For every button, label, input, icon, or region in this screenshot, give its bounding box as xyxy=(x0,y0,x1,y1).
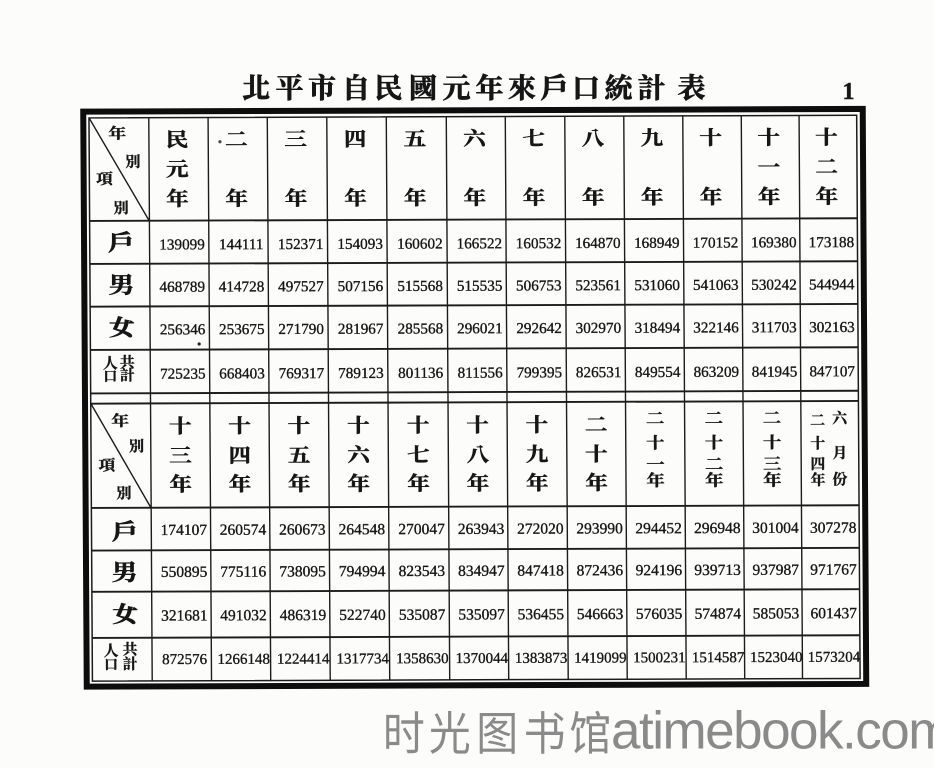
svg-text:311703: 311703 xyxy=(752,319,797,336)
svg-text:164870: 164870 xyxy=(575,235,621,252)
svg-text:302163: 302163 xyxy=(809,319,855,336)
svg-text:260673: 260673 xyxy=(279,521,326,538)
svg-text:536455: 536455 xyxy=(518,606,565,623)
svg-text:506753: 506753 xyxy=(516,277,562,294)
svg-text:293990: 293990 xyxy=(576,520,623,537)
svg-text:841945: 841945 xyxy=(752,363,798,380)
svg-text:174107: 174107 xyxy=(161,522,208,539)
svg-text:576035: 576035 xyxy=(636,606,683,623)
svg-text:170152: 170152 xyxy=(693,234,739,251)
svg-text:302970: 302970 xyxy=(576,320,622,337)
svg-text:668403: 668403 xyxy=(219,365,265,382)
svg-text:738095: 738095 xyxy=(279,563,326,580)
svg-text:160602: 160602 xyxy=(397,236,443,253)
svg-text:1573204: 1573204 xyxy=(808,650,861,666)
svg-text:264548: 264548 xyxy=(339,521,386,538)
svg-text:811556: 811556 xyxy=(458,364,504,381)
svg-text:847418: 847418 xyxy=(517,562,564,579)
svg-text:515535: 515535 xyxy=(457,278,503,295)
svg-text:256346: 256346 xyxy=(160,321,206,338)
svg-text:1419099: 1419099 xyxy=(574,650,627,666)
svg-text:872576: 872576 xyxy=(162,652,208,668)
svg-text:544944: 544944 xyxy=(809,276,855,293)
svg-text:154093: 154093 xyxy=(337,236,383,253)
svg-text:601437: 601437 xyxy=(810,605,857,622)
svg-text:139099: 139099 xyxy=(159,236,205,253)
svg-text:507156: 507156 xyxy=(338,278,384,295)
svg-text:281967: 281967 xyxy=(338,321,384,338)
svg-text:atimebook.com: atimebook.com xyxy=(611,702,934,761)
svg-text:1383873: 1383873 xyxy=(515,651,568,667)
svg-text:872436: 872436 xyxy=(577,562,624,579)
svg-text:1: 1 xyxy=(843,79,855,105)
svg-text:799395: 799395 xyxy=(517,364,563,381)
svg-text:794994: 794994 xyxy=(339,563,386,580)
svg-text:834947: 834947 xyxy=(458,563,505,580)
svg-text:253675: 253675 xyxy=(219,321,265,338)
svg-text:1266148: 1266148 xyxy=(217,652,270,668)
svg-text:318494: 318494 xyxy=(635,320,681,337)
svg-text:263943: 263943 xyxy=(458,521,505,538)
svg-text:301004: 301004 xyxy=(752,520,799,537)
svg-text:166522: 166522 xyxy=(457,235,503,252)
svg-text:725235: 725235 xyxy=(160,366,206,383)
svg-text:272020: 272020 xyxy=(517,521,564,538)
svg-text:924196: 924196 xyxy=(636,562,683,579)
svg-text:1370044: 1370044 xyxy=(456,651,509,667)
svg-text:270047: 270047 xyxy=(398,521,445,538)
svg-text:863209: 863209 xyxy=(694,364,740,381)
svg-text:574874: 574874 xyxy=(695,606,742,623)
svg-text:321681: 321681 xyxy=(161,607,208,624)
svg-text:775116: 775116 xyxy=(220,564,266,581)
svg-text:271790: 271790 xyxy=(278,321,324,338)
svg-text:585053: 585053 xyxy=(753,605,800,622)
svg-text:169380: 169380 xyxy=(751,234,797,251)
svg-text:491032: 491032 xyxy=(220,607,267,624)
svg-text:530242: 530242 xyxy=(751,277,797,294)
svg-text:294452: 294452 xyxy=(635,520,682,537)
svg-text:285568: 285568 xyxy=(398,320,444,337)
svg-text:144111: 144111 xyxy=(219,236,264,253)
svg-text:522740: 522740 xyxy=(339,607,386,624)
svg-text:535097: 535097 xyxy=(458,606,505,623)
svg-text:307278: 307278 xyxy=(810,520,857,537)
svg-text:939713: 939713 xyxy=(694,562,741,579)
svg-text:322146: 322146 xyxy=(693,319,739,336)
svg-text:801136: 801136 xyxy=(398,365,444,382)
svg-text:168949: 168949 xyxy=(634,235,680,252)
svg-text:769317: 769317 xyxy=(279,365,325,382)
svg-text:152371: 152371 xyxy=(278,236,324,253)
svg-text:826531: 826531 xyxy=(576,364,622,381)
svg-text:535087: 535087 xyxy=(399,607,446,624)
svg-text:468789: 468789 xyxy=(159,279,205,296)
svg-text:1358630: 1358630 xyxy=(396,651,449,667)
svg-text:1523040: 1523040 xyxy=(750,650,803,666)
svg-text:1500231: 1500231 xyxy=(633,650,686,666)
svg-text:847107: 847107 xyxy=(809,363,855,380)
svg-text:515568: 515568 xyxy=(397,278,443,295)
svg-text:497527: 497527 xyxy=(278,278,324,295)
svg-text:1514587: 1514587 xyxy=(692,650,745,666)
svg-text:550895: 550895 xyxy=(161,564,208,581)
svg-text:414728: 414728 xyxy=(219,278,265,295)
svg-text:823543: 823543 xyxy=(399,563,446,580)
svg-text:789123: 789123 xyxy=(338,365,384,382)
svg-text:296021: 296021 xyxy=(457,320,503,337)
svg-text:260574: 260574 xyxy=(220,522,267,539)
svg-text:971767: 971767 xyxy=(810,561,857,578)
svg-text:849554: 849554 xyxy=(635,364,681,381)
svg-text:937987: 937987 xyxy=(752,562,799,579)
svg-text:292642: 292642 xyxy=(516,320,562,337)
svg-text:160532: 160532 xyxy=(516,235,562,252)
svg-text:546663: 546663 xyxy=(577,606,624,623)
svg-text:296948: 296948 xyxy=(694,520,741,537)
svg-text:486319: 486319 xyxy=(280,607,327,624)
svg-text:523561: 523561 xyxy=(575,277,621,294)
svg-text:1224414: 1224414 xyxy=(277,652,330,668)
svg-text:173188: 173188 xyxy=(809,234,855,251)
svg-text:541063: 541063 xyxy=(693,277,739,294)
svg-text:1317734: 1317734 xyxy=(336,651,389,667)
svg-text:531060: 531060 xyxy=(634,277,680,294)
